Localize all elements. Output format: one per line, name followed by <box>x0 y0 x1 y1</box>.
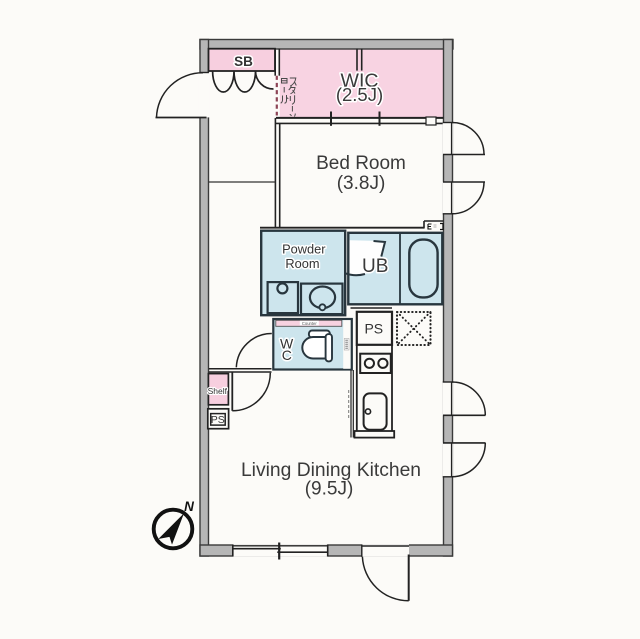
svg-text:PS: PS <box>364 320 383 336</box>
svg-text:UB: UB <box>362 256 388 277</box>
svg-text:(3.8J): (3.8J) <box>337 173 386 194</box>
svg-text:Shelf: Shelf <box>208 386 228 396</box>
svg-text:C: C <box>282 347 292 363</box>
svg-text:Counter: Counter <box>302 321 318 326</box>
svg-text:(9.5J): (9.5J) <box>305 479 354 500</box>
svg-text:SB: SB <box>234 54 253 69</box>
svg-text:Bed Room: Bed Room <box>316 153 406 174</box>
svg-text:N: N <box>184 499 194 514</box>
svg-text:Powder: Powder <box>282 242 326 257</box>
svg-text:(2.5J): (2.5J) <box>336 84 383 105</box>
svg-text:PS: PS <box>211 414 225 426</box>
svg-text:Room: Room <box>285 256 319 271</box>
